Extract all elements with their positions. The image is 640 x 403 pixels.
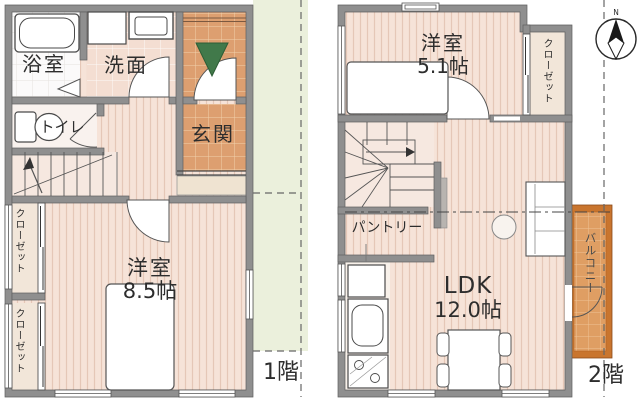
chair <box>437 364 449 387</box>
round-table <box>492 215 516 239</box>
balcony-label: バルコニー <box>584 232 596 332</box>
chair <box>437 333 449 356</box>
closet-lower-label: クローゼット <box>13 308 23 392</box>
compass-north-label: N <box>610 9 622 17</box>
chair <box>499 364 511 387</box>
bedroom1-name-label: 洋室 <box>110 257 190 279</box>
floor1-label: 1階 <box>253 361 309 384</box>
kitchen-counter <box>348 299 388 353</box>
bathroom-label: 浴室 <box>14 54 74 75</box>
ldk-name-label: LDK <box>418 274 518 298</box>
floor-plan-page: 浴室 洗面 トイレ 玄関 洋室 8.5帖 クローゼット クローゼット 1階 洋室… <box>0 0 640 403</box>
refrigerator-space <box>348 265 385 297</box>
balcony-door-opening <box>565 285 572 321</box>
closet-upper-label: クローゼット <box>13 208 23 294</box>
toilet-label: トイレ <box>30 120 94 136</box>
chair <box>499 333 511 356</box>
closet-door-f2 <box>523 34 530 115</box>
ldk-size-label: 12.0帖 <box>408 299 528 321</box>
washroom-label: 洗面 <box>95 55 157 76</box>
sofa <box>526 182 565 256</box>
pantry-label: パントリー <box>343 221 431 236</box>
dining-table <box>448 330 500 390</box>
entrance-label: 玄関 <box>181 124 245 145</box>
closet-f2-label: クローゼット <box>541 38 551 118</box>
compass-icon <box>596 19 636 59</box>
floor2-label: 2階 <box>578 364 634 387</box>
bedroom1-size-label: 8.5帖 <box>100 280 200 302</box>
counter-partition <box>441 178 447 228</box>
bedroom2-name-label: 洋室 <box>403 33 483 54</box>
interior-window-strip <box>494 117 520 121</box>
bedroom2-size-label: 5.1帖 <box>393 56 493 77</box>
